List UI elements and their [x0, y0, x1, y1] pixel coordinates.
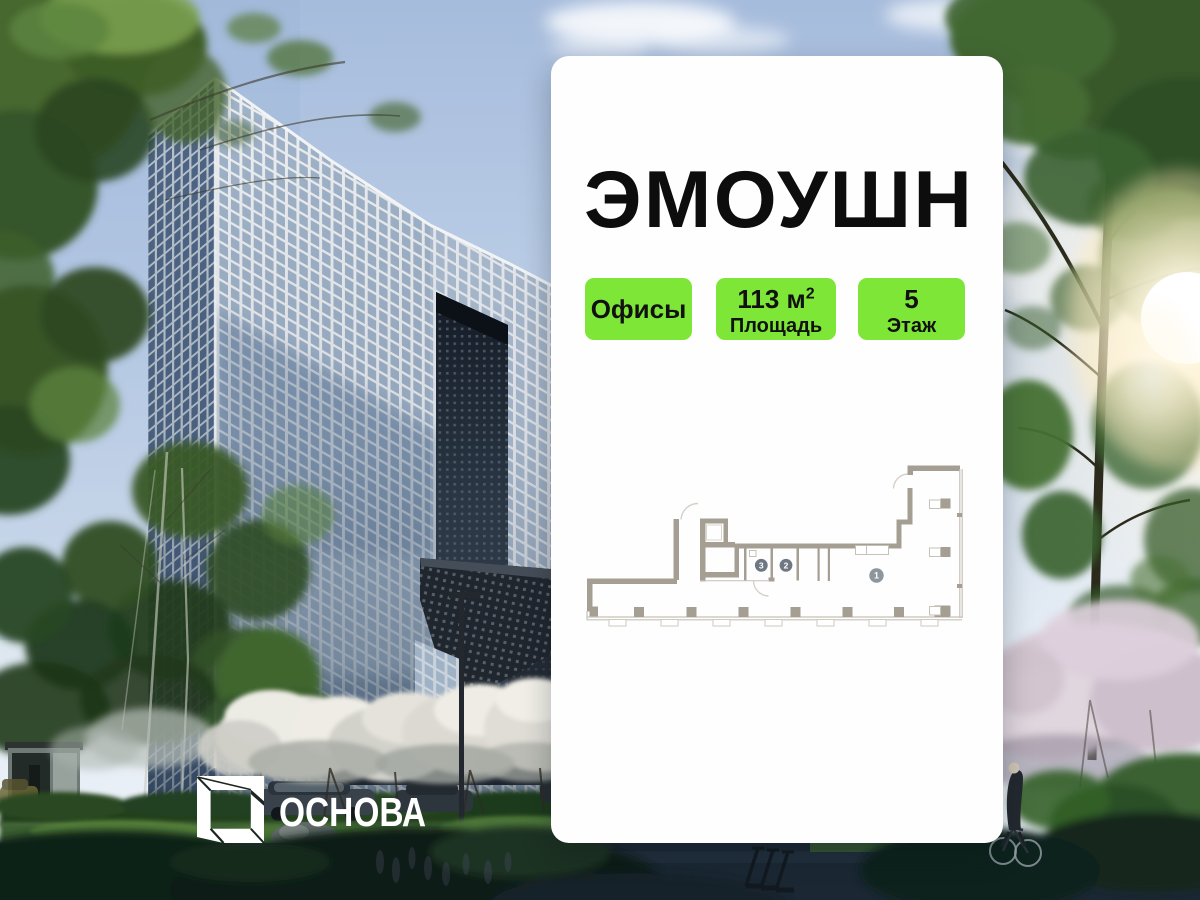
svg-text:3: 3	[759, 560, 764, 570]
svg-text:1: 1	[874, 571, 879, 581]
svg-text:ОСНОВА: ОСНОВА	[279, 789, 426, 835]
svg-text:2: 2	[784, 560, 789, 570]
